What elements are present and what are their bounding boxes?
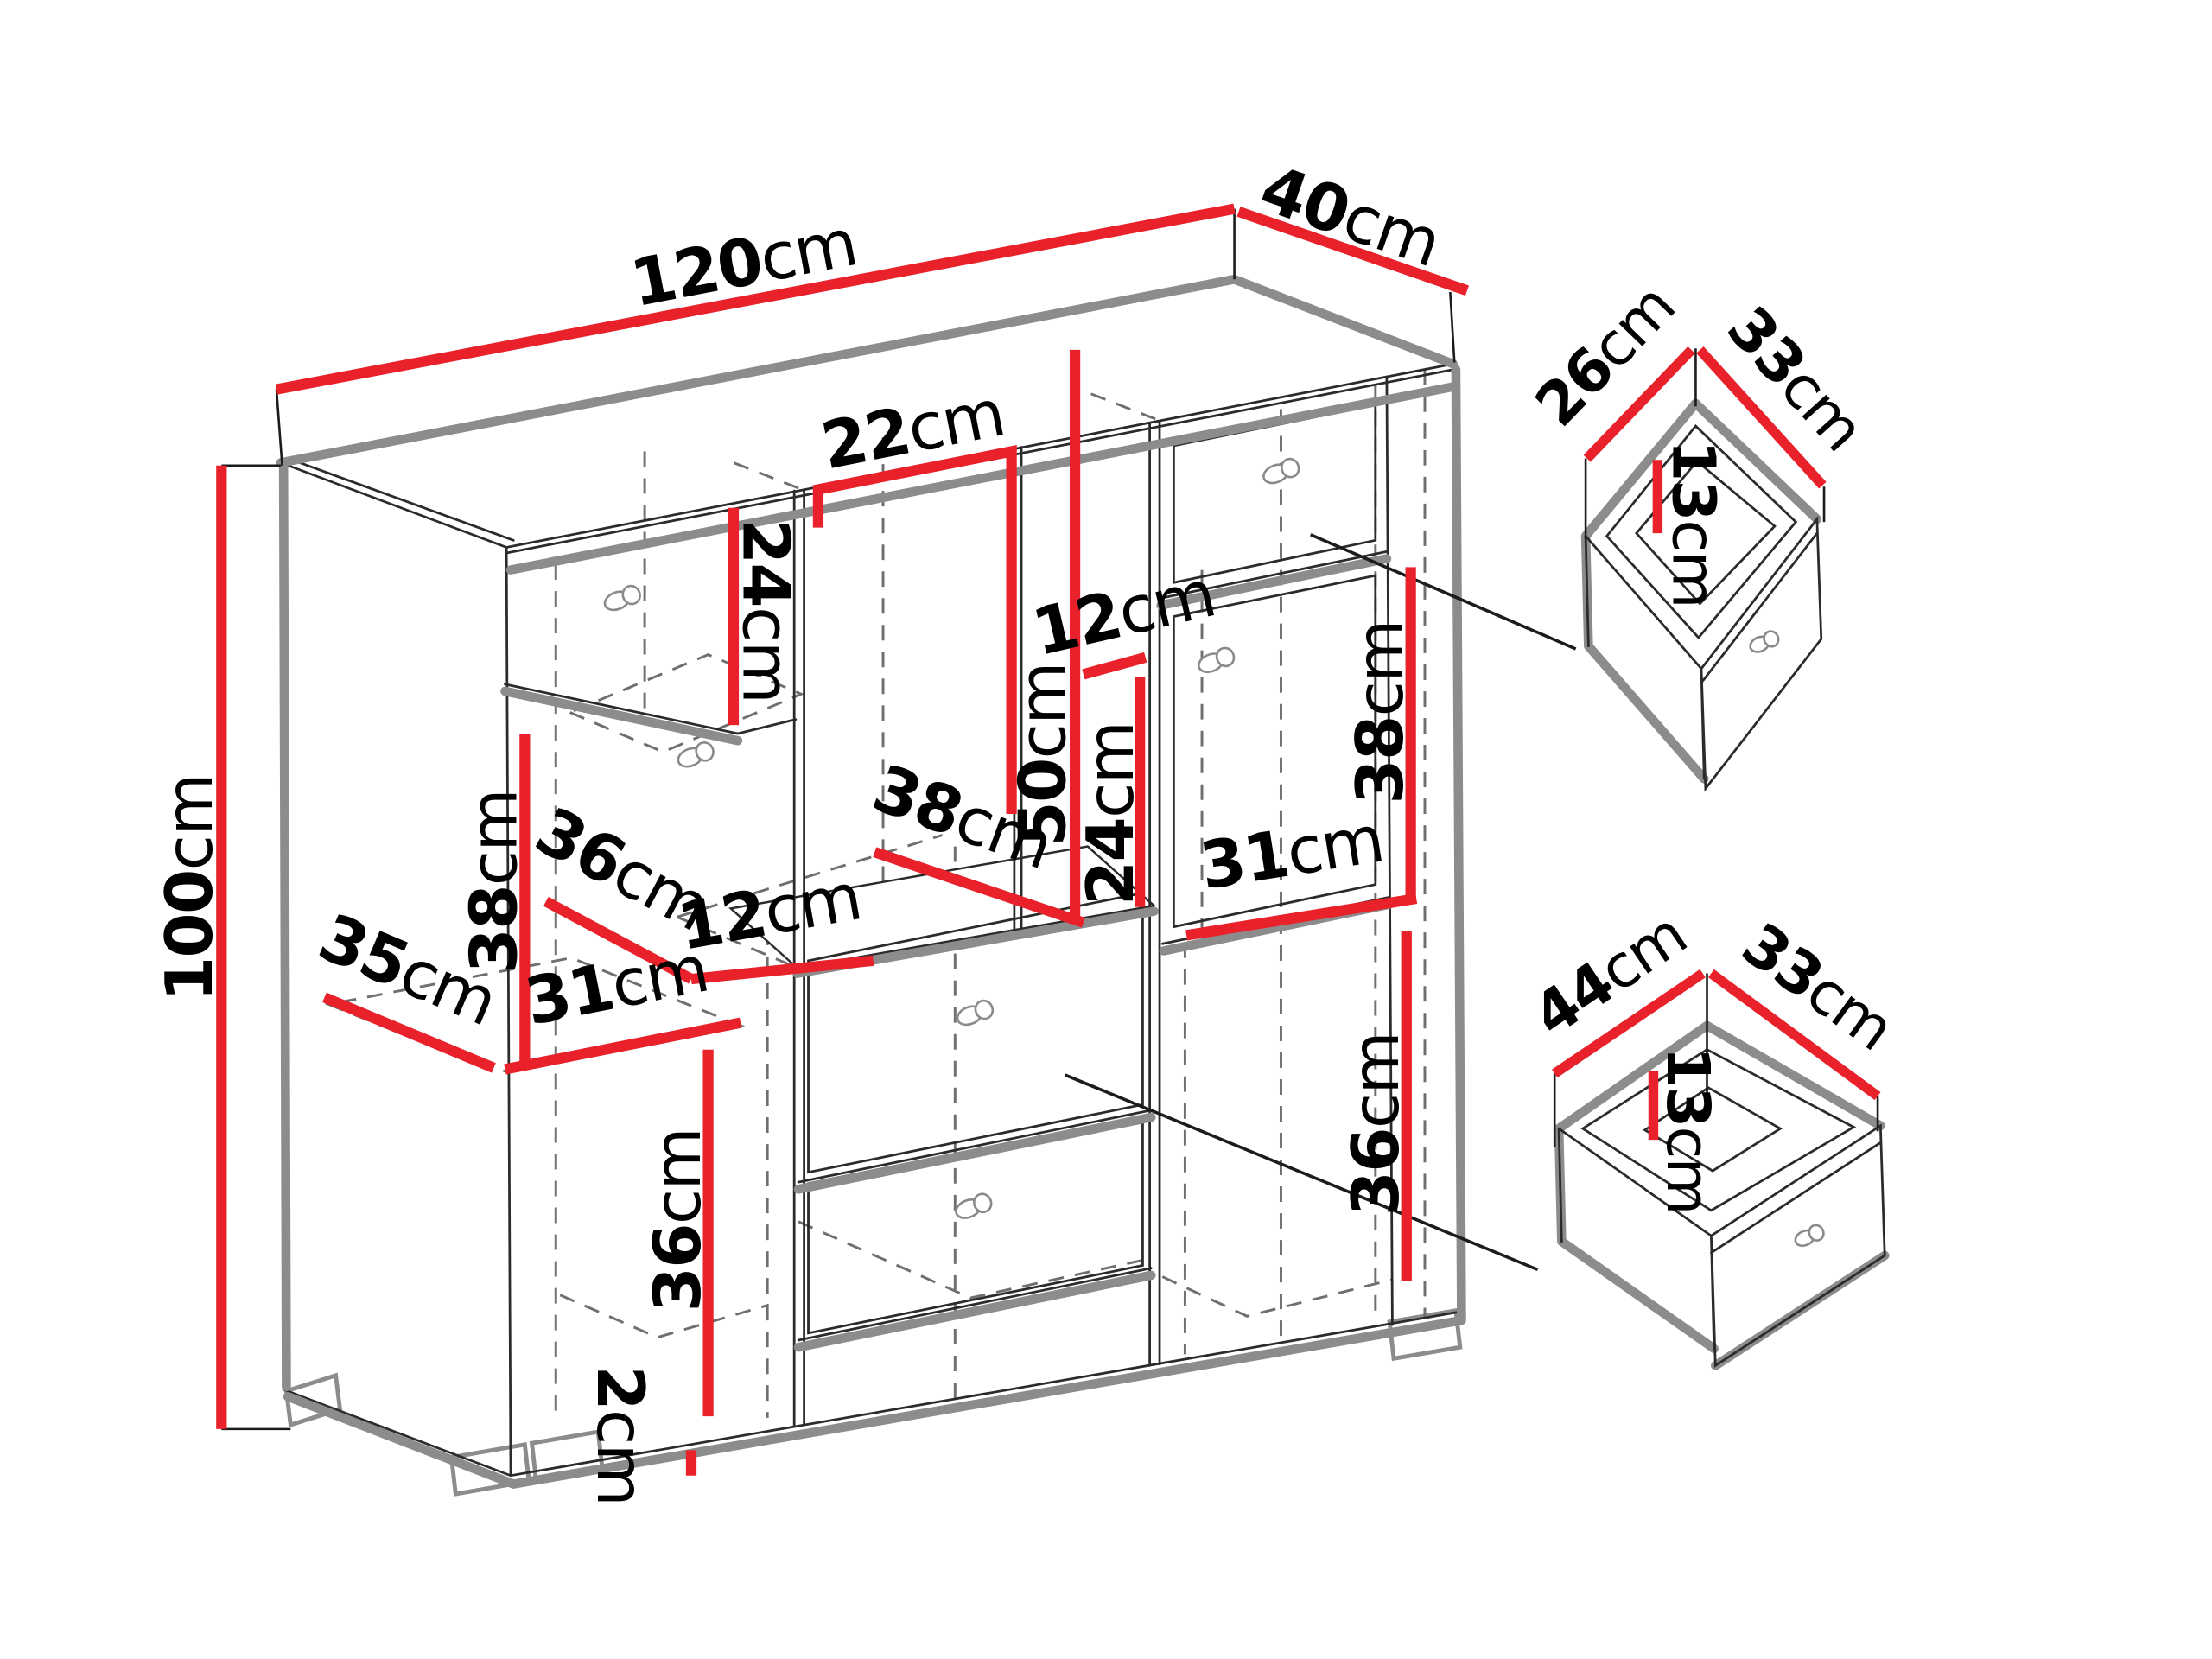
furniture-dimension-diagram: 120cm 40cm 100cm 22cm 24cm 50cm 12cm 24c… <box>0 0 2212 1659</box>
diagram-canvas: 120cm 40cm 100cm 22cm 24cm 50cm 12cm 24c… <box>0 0 2212 1659</box>
foot-height-label: 2cm <box>582 1365 658 1505</box>
large-drawer-depth-label: 44cm <box>1522 899 1699 1050</box>
left-opening-height-label: 38cm <box>456 790 532 973</box>
depth-label: 40cm <box>1251 150 1450 282</box>
left-door-height-label: 36cm <box>639 1128 715 1312</box>
large-drawer-width-label: 33cm <box>1730 910 1905 1064</box>
knob-icon <box>1747 629 1781 656</box>
height-label: 100cm <box>151 774 227 1001</box>
knob-icon <box>1793 1223 1827 1249</box>
small-drawer-depth-label: 26cm <box>1522 271 1688 440</box>
large-drawer-height-label: 13cm <box>1653 1046 1722 1213</box>
small-drawer-height-label: 13cm <box>1658 440 1727 607</box>
right-lower-opening-height-label: 36cm <box>1338 1033 1414 1216</box>
upper-left-shelf-height-label: 24cm <box>728 519 804 702</box>
center-shelf-height-label: 24cm <box>1072 722 1148 906</box>
right-door-height-label: 38cm <box>1342 620 1418 804</box>
